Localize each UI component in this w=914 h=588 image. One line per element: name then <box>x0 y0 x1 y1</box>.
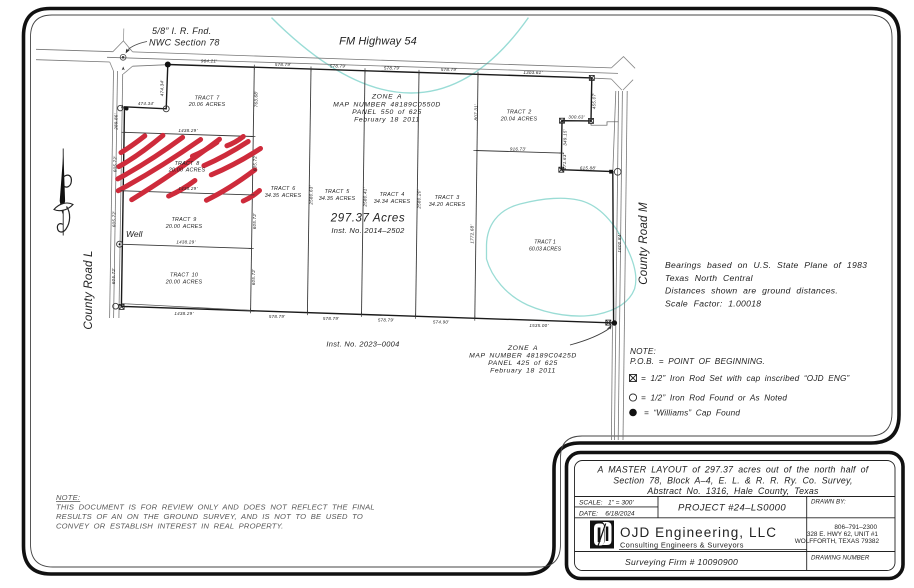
svg-text:FM Highway 54: FM Highway 54 <box>339 36 417 48</box>
svg-text:February 18 2011: February 18 2011 <box>354 117 420 124</box>
svg-text:Abstract No. 1316, Hale County: Abstract No. 1316, Hale County, Texas <box>646 486 819 496</box>
svg-text:NWC Section 78: NWC Section 78 <box>149 38 220 48</box>
svg-text:20.00 ACRES: 20.00 ACRES <box>165 280 203 286</box>
svg-text:574.90': 574.90' <box>433 319 449 324</box>
svg-text:PANEL 550 of 625: PANEL 550 of 625 <box>352 109 422 116</box>
svg-text:Inst. No. 2023–0004: Inst. No. 2023–0004 <box>326 340 399 349</box>
svg-text:605.72': 605.72' <box>252 213 257 229</box>
svg-text:20.06 ACRES: 20.06 ACRES <box>188 102 226 108</box>
svg-text:2580.41': 2580.41' <box>362 187 367 207</box>
svg-text:DATE: 6/18/2024: DATE: 6/18/2024 <box>579 511 635 518</box>
svg-text:A MASTER LAYOUT of 297.37 acre: A MASTER LAYOUT of 297.37 acres out of t… <box>597 465 870 475</box>
svg-text:Scale Factor: 1.00018: Scale Factor: 1.00018 <box>665 299 761 309</box>
svg-text:TRACT 10: TRACT 10 <box>170 273 198 279</box>
svg-text:605.72': 605.72' <box>112 156 117 172</box>
svg-text:20.00 ACRES: 20.00 ACRES <box>168 168 206 174</box>
svg-text:349.15': 349.15' <box>563 129 568 145</box>
svg-text:ZONE A: ZONE A <box>371 94 402 101</box>
svg-text:578.79': 578.79' <box>441 67 457 72</box>
svg-text:605.72': 605.72' <box>112 211 117 227</box>
svg-text:1600.84': 1600.84' <box>617 233 622 252</box>
svg-text:TRACT 2: TRACT 2 <box>507 110 532 116</box>
svg-text:TRACT 5: TRACT 5 <box>325 189 351 195</box>
svg-text:THIS DOCUMENT IS FOR REVIEW ON: THIS DOCUMENT IS FOR REVIEW ONLY AND DOE… <box>56 503 375 512</box>
svg-text:TRACT 8: TRACT 8 <box>175 161 200 167</box>
svg-text:Inst. No. 2014–2502: Inst. No. 2014–2502 <box>331 226 405 235</box>
svg-text:578.79': 578.79' <box>384 65 400 70</box>
svg-text:Bearings based on U.S. State P: Bearings based on U.S. State Plane of 19… <box>665 260 867 270</box>
svg-text:NOTE:: NOTE: <box>56 493 80 502</box>
svg-text:20.00 ACRES: 20.00 ACRES <box>165 224 203 230</box>
svg-text:1772.68': 1772.68' <box>469 224 474 243</box>
svg-text:County Road L: County Road L <box>83 250 95 329</box>
svg-text:CONVEY OR ESTABLISH INTEREST I: CONVEY OR ESTABLISH INTEREST IN REAL PRO… <box>56 522 284 531</box>
svg-text:P.O.B. = POINT OF BEGINNING.: P.O.B. = POINT OF BEGINNING. <box>630 357 765 366</box>
svg-text:964.21': 964.21' <box>201 58 217 63</box>
svg-text:605.72': 605.72' <box>111 268 116 284</box>
svg-text:605.72': 605.72' <box>251 269 256 285</box>
svg-text:PROJECT #24–LS0000: PROJECT #24–LS0000 <box>678 503 786 514</box>
svg-text:County Road M: County Road M <box>638 202 650 285</box>
svg-text:February 18 2011: February 18 2011 <box>490 367 556 374</box>
svg-text:763.68': 763.68' <box>254 91 259 107</box>
svg-text:TRACT 3: TRACT 3 <box>435 195 460 201</box>
svg-text:474.34': 474.34' <box>160 80 165 96</box>
svg-text:MAP NUMBER 48189C0425D: MAP NUMBER 48189C0425D <box>469 353 577 360</box>
svg-text:578.79': 578.79' <box>378 318 394 323</box>
svg-text:20.04 ACRES: 20.04 ACRES <box>500 117 538 123</box>
svg-text:2580.20': 2580.20' <box>416 189 421 209</box>
svg-text:328 E. HWY 62, UNIT #1: 328 E. HWY 62, UNIT #1 <box>807 531 879 538</box>
svg-text:ZONE A: ZONE A <box>507 345 538 352</box>
svg-text:300.63': 300.63' <box>568 114 584 119</box>
svg-text:60.03 ACRES: 60.03 ACRES <box>529 247 562 253</box>
svg-text:289.86': 289.86' <box>114 113 119 130</box>
svg-text:DRAWING NUMBER: DRAWING NUMBER <box>811 555 870 562</box>
svg-text:807.31': 807.31' <box>473 104 478 120</box>
svg-text:615.88': 615.88' <box>580 165 596 170</box>
svg-text:TRACT 4: TRACT 4 <box>380 192 405 198</box>
svg-text:Distances shown are ground dis: Distances shown are ground distances. <box>665 286 838 296</box>
svg-text:578.79': 578.79' <box>269 314 285 319</box>
svg-text:OJD Engineering, LLC: OJD Engineering, LLC <box>620 525 777 540</box>
svg-text:171.63': 171.63' <box>562 153 567 169</box>
svg-text:Well: Well <box>126 229 143 239</box>
svg-text:Texas North Central: Texas North Central <box>665 273 754 283</box>
svg-text:1438.29': 1438.29' <box>174 311 193 316</box>
svg-text:Surveying Firm # 10090900: Surveying Firm # 10090900 <box>625 557 738 567</box>
svg-text:TRACT 9: TRACT 9 <box>172 217 197 223</box>
svg-text:PANEL 425 of 625: PANEL 425 of 625 <box>488 360 558 367</box>
svg-text:Section 78, Block A–4, E. L. &: Section 78, Block A–4, E. L. & R. R. Ry.… <box>613 476 852 486</box>
svg-text:MAP NUMBER 48189C0550D: MAP NUMBER 48189C0550D <box>333 102 441 109</box>
svg-text:DRAWN BY:: DRAWN BY: <box>811 499 846 506</box>
svg-text:SCALE: 1” = 300’: SCALE: 1” = 300’ <box>579 500 634 507</box>
svg-text:916.73': 916.73' <box>510 146 526 151</box>
svg-text:1438.29': 1438.29' <box>178 128 197 133</box>
svg-text:578.79': 578.79' <box>323 316 339 321</box>
svg-text:RESULTS OF AN ON THE GROUND SU: RESULTS OF AN ON THE GROUND SURVEY, AND … <box>56 512 363 521</box>
svg-text:TRACT 1: TRACT 1 <box>534 240 556 246</box>
svg-text:NOTE:: NOTE: <box>630 347 656 356</box>
svg-text:455.07': 455.07' <box>592 93 597 109</box>
svg-text:578.79': 578.79' <box>330 64 346 69</box>
svg-text:1438.29': 1438.29' <box>178 186 197 191</box>
svg-text:= 1/2” Iron Rod Found or As No: = 1/2” Iron Rod Found or As Noted <box>641 394 787 403</box>
svg-text:Consulting Engineers & Surveyo: Consulting Engineers & Surveyors <box>620 541 744 550</box>
svg-text:= “Williams” Cap Found: = “Williams” Cap Found <box>644 409 740 418</box>
svg-text:TRACT 7: TRACT 7 <box>195 96 221 102</box>
svg-text:1438.29': 1438.29' <box>176 240 195 245</box>
svg-text:2580.63': 2580.63' <box>308 185 313 205</box>
svg-text:WOLFFORTH, TEXAS 79382: WOLFFORTH, TEXAS 79382 <box>795 538 880 545</box>
svg-text:= 1/2” Iron Rod Set with cap i: = 1/2” Iron Rod Set with cap inscribed “… <box>641 374 851 383</box>
svg-text:806–791–2300: 806–791–2300 <box>834 524 877 531</box>
svg-text:578.79': 578.79' <box>275 62 291 67</box>
svg-text:474.34': 474.34' <box>138 101 154 106</box>
svg-text:34.35 ACRES: 34.35 ACRES <box>265 193 302 199</box>
svg-text:1303.61': 1303.61' <box>523 70 542 75</box>
svg-text:34.20 ACRES: 34.20 ACRES <box>429 202 466 208</box>
svg-text:605.72': 605.72' <box>253 155 258 171</box>
svg-text:5/8” I. R. Fnd.: 5/8” I. R. Fnd. <box>152 26 212 36</box>
svg-text:297.37 Acres: 297.37 Acres <box>330 213 406 225</box>
svg-text:34.34 ACRES: 34.34 ACRES <box>374 199 411 205</box>
svg-text:1535.00': 1535.00' <box>529 323 548 328</box>
svg-text:TRACT 6: TRACT 6 <box>271 186 296 192</box>
svg-text:34.35 ACRES: 34.35 ACRES <box>319 196 356 202</box>
